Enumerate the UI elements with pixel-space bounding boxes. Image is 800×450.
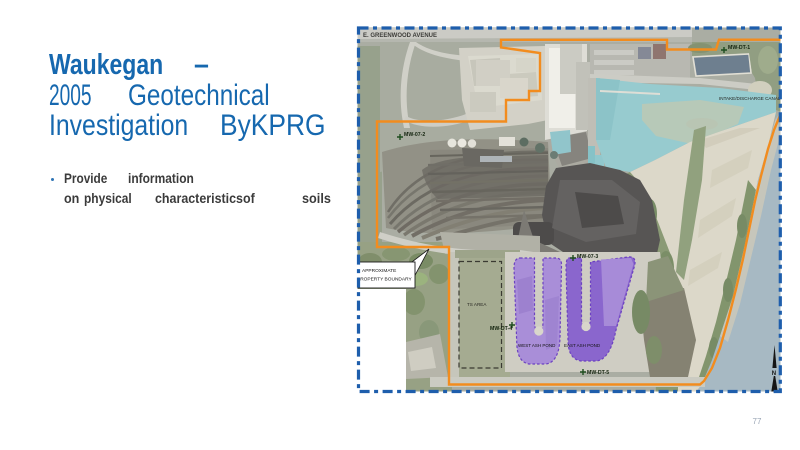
svg-text:INTAKE/DISCHARGE CANAL: INTAKE/DISCHARGE CANAL [719,96,781,101]
svg-text:PROPERTY BOUNDARY: PROPERTY BOUNDARY [357,277,412,283]
svg-text:E. GREENWOOD AVENUE: E. GREENWOOD AVENUE [363,33,437,39]
svg-text:MW-DT-4: MW-DT-4 [490,326,512,332]
svg-text:WEST ASH POND: WEST ASH POND [518,343,556,348]
svg-text:MW-DT-5: MW-DT-5 [587,370,609,376]
svg-text:TS AREA: TS AREA [467,302,487,307]
svg-text:EAST ASH POND: EAST ASH POND [564,343,601,348]
svg-text:N: N [772,371,776,377]
svg-text:APPROXIMATE: APPROXIMATE [362,268,396,274]
svg-text:MW-DT-1: MW-DT-1 [728,45,750,51]
svg-text:MW-07-2: MW-07-2 [404,132,425,138]
svg-text:MW-07-3: MW-07-3 [577,254,598,260]
